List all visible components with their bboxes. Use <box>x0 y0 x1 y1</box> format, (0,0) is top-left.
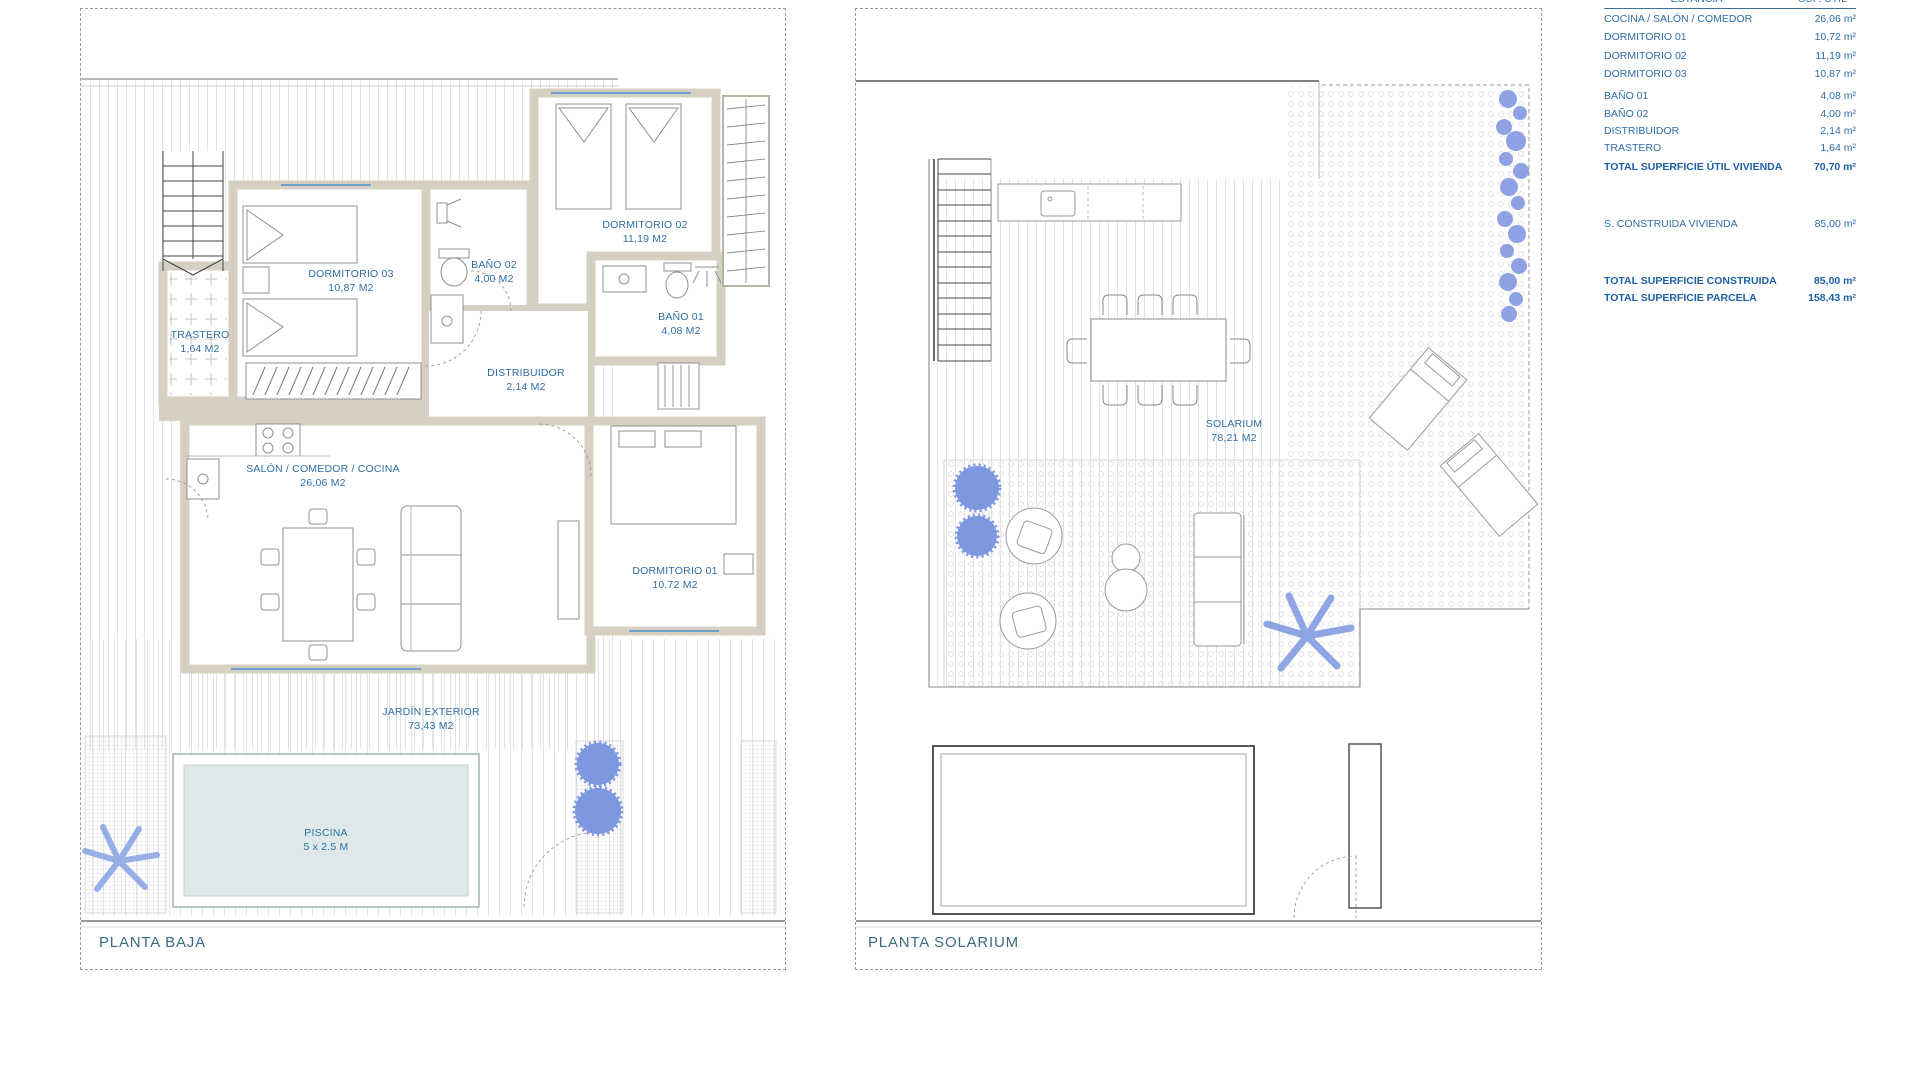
wardrobe-dorm02 <box>723 96 769 286</box>
planta-baja-plan: TRASTERO1,64 M2 DORMITORIO 0310,87 M2 BA… <box>80 8 786 970</box>
room-label-jardin-exterior: JARDÍN EXTERIOR73,43 M2 <box>382 705 480 733</box>
room-label-solarium: SOLARIUM78,21 M2 <box>1206 417 1262 445</box>
room-label-dormitorio-03: DORMITORIO 0310,87 M2 <box>308 267 393 295</box>
header-sup-util: SUP. ÚTIL <box>1789 0 1856 6</box>
room-label-dormitorio-02: DORMITORIO 0211,19 M2 <box>602 218 687 246</box>
outdoor-kitchen-counter <box>998 184 1181 221</box>
lower-roof-outlines <box>933 744 1381 914</box>
room-label-bano-02: BAÑO 024,00 M2 <box>471 258 517 286</box>
total-util-row: TOTAL SUPERFICIE ÚTIL VIVIENDA 70,70 m² <box>1604 161 1856 174</box>
total-parcela-row: TOTAL SUPERFICIE PARCELA 158,43 m² <box>1604 292 1856 305</box>
room-label-dormitorio-01: DORMITORIO 0110.72 M2 <box>632 564 717 592</box>
table-row: DORMITORIO 03 10,87 m² <box>1604 68 1856 81</box>
closet-distribuidor <box>658 363 699 409</box>
table-row: COCINA / SALÓN / COMEDOR 26,06 m² <box>1604 13 1856 26</box>
construida-row: S. CONSTRUIDA VIVIENDA 85,00 m² <box>1604 218 1856 231</box>
table-header: ESTANCIA SUP. ÚTIL <box>1604 0 1856 6</box>
table-row: DORMITORIO 02 11,19 m² <box>1604 50 1856 63</box>
plan-title-planta-solarium: PLANTA SOLARIUM <box>868 934 1019 951</box>
table-row: TRASTERO 1,64 m² <box>1604 142 1856 155</box>
table-row: DISTRIBUIDOR 2,14 m² <box>1604 125 1856 138</box>
planta-solarium-plan: SOLARIUM78,21 M2 PLANTA SOLARIUM <box>855 8 1542 970</box>
ground-line <box>81 921 785 927</box>
table-row: BAÑO 01 4,08 m² <box>1604 90 1856 103</box>
room-label-piscina: PISCINA5 x 2.5 M <box>304 826 349 854</box>
planta-solarium-drawing <box>856 9 1541 969</box>
total-construida-row: TOTAL SUPERFICIE CONSTRUIDA 85,00 m² <box>1604 275 1856 288</box>
room-label-trastero: TRASTERO1,64 M2 <box>171 328 230 356</box>
entry-door-swing <box>1294 856 1356 918</box>
header-rule <box>1604 8 1856 9</box>
plan-title-planta-baja: PLANTA BAJA <box>99 934 206 951</box>
table-row: DORMITORIO 01 10,72 m² <box>1604 31 1856 44</box>
room-label-salon-comedor-cocina: SALÓN / COMEDOR / COCINA26,06 M2 <box>246 462 400 490</box>
planta-baja-drawing <box>81 9 785 969</box>
room-label-distribuidor: DISTRIBUIDOR2,14 M2 <box>487 366 565 394</box>
table-row: BAÑO 02 4,00 m² <box>1604 108 1856 121</box>
header-estancia: ESTANCIA <box>1604 0 1789 6</box>
room-label-bano-01: BAÑO 014,08 M2 <box>658 310 704 338</box>
floorplan-sheet: TRASTERO1,64 M2 DORMITORIO 0310,87 M2 BA… <box>0 0 1920 1080</box>
ground-line <box>856 921 1541 927</box>
